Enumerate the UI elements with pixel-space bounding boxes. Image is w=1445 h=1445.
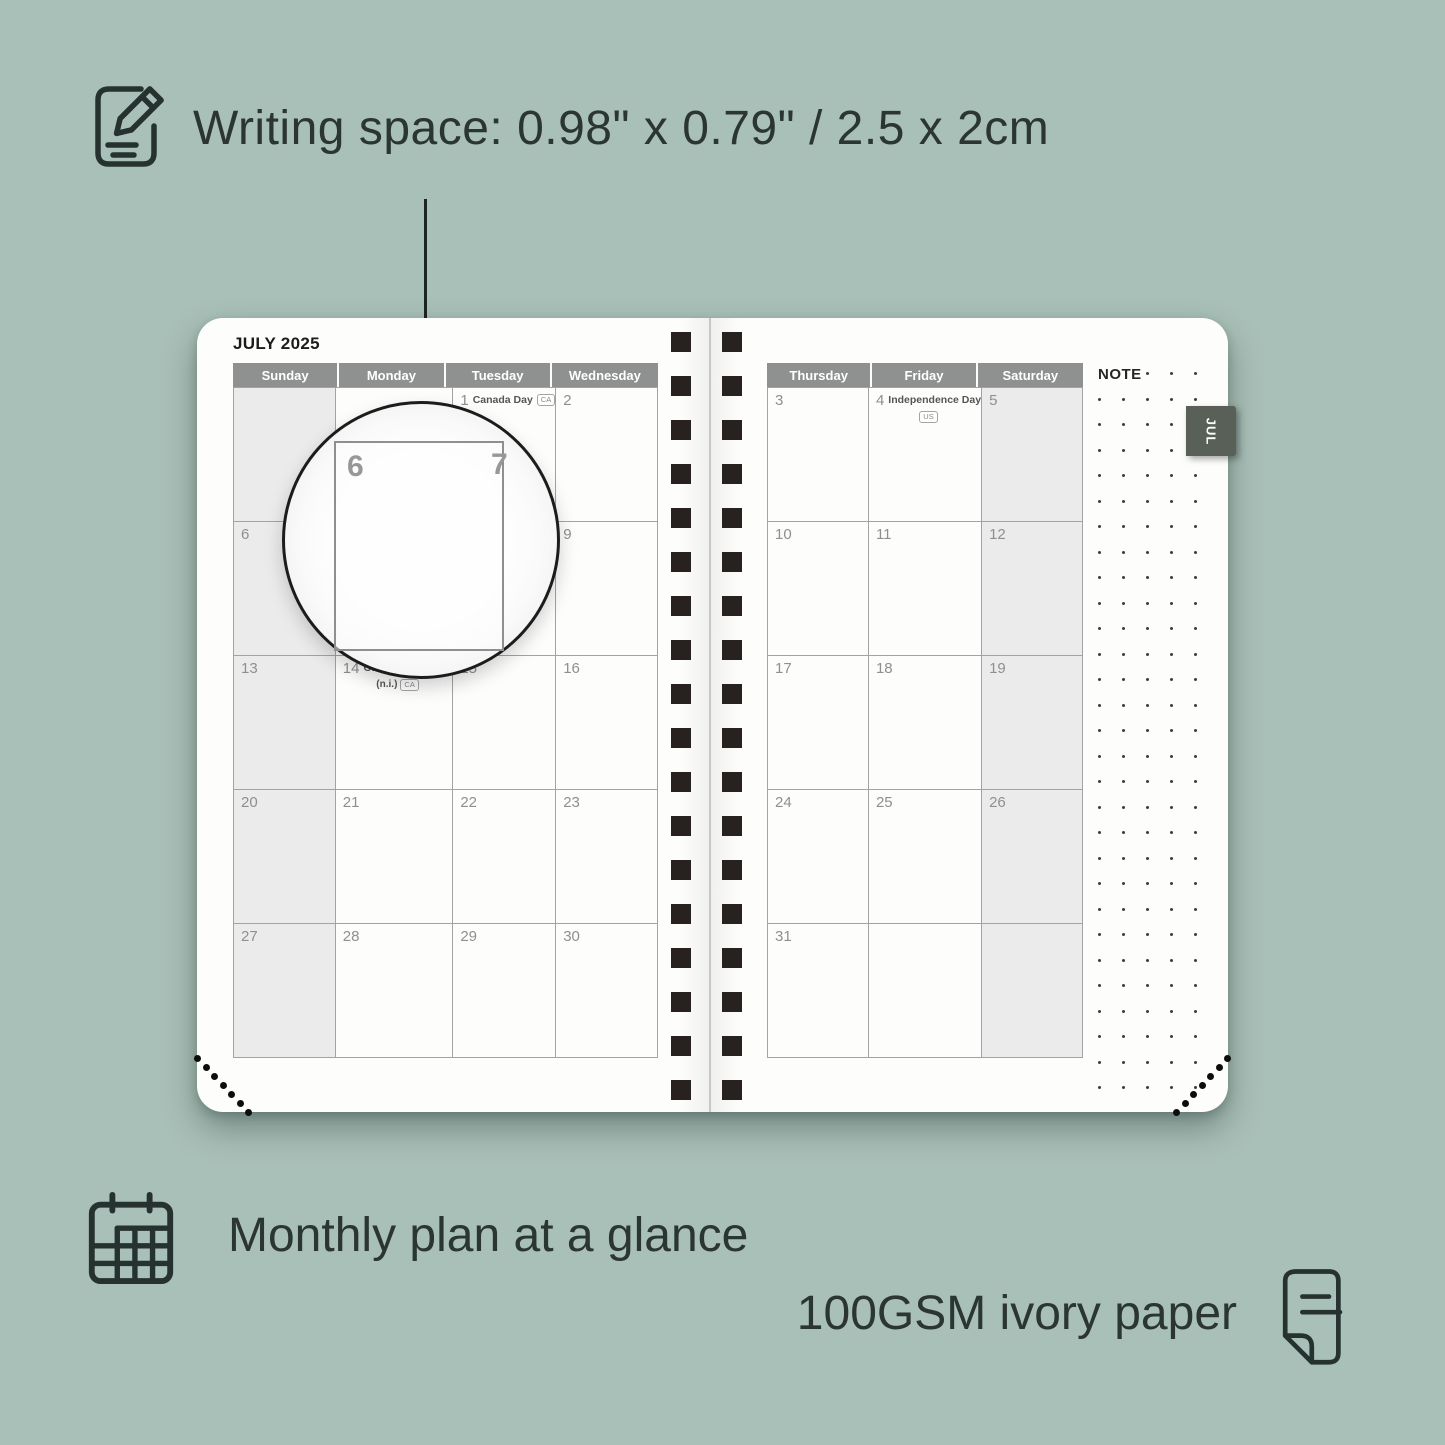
note-dot — [1098, 780, 1101, 783]
note-pencil-icon — [84, 72, 184, 176]
day-header-sunday: Sunday — [233, 363, 339, 387]
note-dot — [1194, 398, 1197, 401]
note-dot — [1146, 525, 1149, 528]
note-dot — [1170, 857, 1173, 860]
note-dot — [1122, 984, 1125, 987]
note-dot — [1194, 780, 1197, 783]
spiral-hole — [671, 376, 691, 396]
note-dot — [1194, 500, 1197, 503]
note-dot — [1098, 398, 1101, 401]
note-dot — [1122, 959, 1125, 962]
perforation-dot — [228, 1091, 235, 1098]
spiral-hole — [722, 508, 742, 528]
perforation-dot — [1182, 1100, 1189, 1107]
note-dot — [1170, 755, 1173, 758]
spiral-hole — [722, 552, 742, 572]
date-number: 3 — [775, 392, 783, 409]
note-dot — [1194, 653, 1197, 656]
perforation-dot — [211, 1073, 218, 1080]
spiral-hole — [722, 332, 742, 352]
month-tab-jul: JUL — [1186, 406, 1236, 456]
holiday-subline: US — [876, 409, 981, 423]
note-dot — [1098, 602, 1101, 605]
note-dot — [1122, 525, 1125, 528]
spiral-hole — [722, 948, 742, 968]
note-dot — [1122, 602, 1125, 605]
date-number: 16 — [563, 660, 580, 677]
calendar-cell-17: 17 — [768, 656, 869, 790]
note-dot — [1122, 704, 1125, 707]
note-dot — [1146, 474, 1149, 477]
note-dot — [1170, 704, 1173, 707]
note-dot — [1098, 755, 1101, 758]
note-dot — [1194, 806, 1197, 809]
note-dot — [1170, 1010, 1173, 1013]
note-dot — [1146, 729, 1149, 732]
note-dot — [1122, 933, 1125, 936]
spiral-binding-left — [671, 318, 691, 1112]
note-dot — [1122, 500, 1125, 503]
date-number: 22 — [460, 794, 477, 811]
note-dot — [1194, 525, 1197, 528]
note-dot — [1194, 857, 1197, 860]
note-dot — [1098, 908, 1101, 911]
spiral-hole — [722, 1036, 742, 1056]
spiral-hole — [722, 376, 742, 396]
note-dot — [1146, 831, 1149, 834]
note-dot — [1194, 984, 1197, 987]
note-dot — [1170, 576, 1173, 579]
month-tab-label: JUL — [1204, 417, 1219, 445]
note-dot — [1146, 602, 1149, 605]
spiral-hole — [671, 816, 691, 836]
note-dot — [1122, 806, 1125, 809]
calendar-cell-16: 16 — [556, 656, 658, 790]
note-dot — [1170, 959, 1173, 962]
calendar-cell-24: 24 — [768, 790, 869, 924]
note-dot — [1194, 933, 1197, 936]
spiral-hole — [671, 552, 691, 572]
note-dot — [1146, 551, 1149, 554]
perforation-dot — [220, 1082, 227, 1089]
date-number: 18 — [876, 660, 893, 677]
note-dot — [1122, 780, 1125, 783]
writing-space-caption: Writing space: 0.98" x 0.79" / 2.5 x 2cm — [193, 101, 1049, 156]
note-dot — [1194, 729, 1197, 732]
perforation-dot — [1173, 1109, 1180, 1116]
calendar-cell — [982, 924, 1083, 1058]
note-dot — [1170, 729, 1173, 732]
note-dot — [1194, 678, 1197, 681]
date-number: 31 — [775, 928, 792, 945]
spiral-hole — [722, 728, 742, 748]
note-dot — [1170, 398, 1173, 401]
calendar-cell-15: 15 — [453, 656, 556, 790]
spiral-hole — [671, 684, 691, 704]
note-dot — [1098, 1086, 1101, 1089]
date-number: 17 — [775, 660, 792, 677]
note-dot — [1098, 704, 1101, 707]
perforation-dot — [1190, 1091, 1197, 1098]
day-header-friday: Friday — [872, 363, 977, 387]
calendar-cell — [869, 924, 982, 1058]
note-dot — [1194, 704, 1197, 707]
perforation-dot — [1207, 1073, 1214, 1080]
spiral-hole — [671, 1080, 691, 1100]
date-number: 28 — [343, 928, 360, 945]
holiday-name: Independence Day — [888, 393, 981, 408]
note-dot — [1170, 1086, 1173, 1089]
note-dot — [1098, 831, 1101, 834]
calendar-cell-30: 30 — [556, 924, 658, 1058]
note-label: NOTE — [1098, 366, 1142, 383]
date-number: 4 — [876, 392, 884, 409]
date-number: 6 — [241, 526, 249, 543]
note-dot — [1122, 729, 1125, 732]
spiral-hole — [671, 948, 691, 968]
note-dot — [1170, 500, 1173, 503]
date-number: 13 — [241, 660, 258, 677]
note-dot — [1194, 602, 1197, 605]
calendar-cell-3: 3 — [768, 388, 869, 522]
note-dot — [1122, 831, 1125, 834]
note-dot — [1194, 576, 1197, 579]
note-dot — [1098, 984, 1101, 987]
magnified-date-6: 6 — [347, 450, 364, 484]
magnifier-circle: 6 7 — [282, 401, 560, 679]
note-dot — [1122, 1035, 1125, 1038]
note-dot — [1146, 423, 1149, 426]
calendar-cell-4: 4Independence DayUS — [869, 388, 982, 522]
date-number: 9 — [563, 526, 571, 543]
note-dot — [1170, 882, 1173, 885]
monthly-plan-caption: Monthly plan at a glance — [228, 1208, 748, 1263]
note-dot — [1146, 882, 1149, 885]
calendar-cell-20: 20 — [234, 790, 336, 924]
date-number: 29 — [460, 928, 477, 945]
calendar-cell-28: 28 — [336, 924, 454, 1058]
note-dot — [1122, 551, 1125, 554]
note-dot — [1122, 627, 1125, 630]
spiral-hole — [722, 816, 742, 836]
note-dot — [1122, 449, 1125, 452]
note-dot — [1098, 525, 1101, 528]
note-dot — [1146, 1061, 1149, 1064]
note-dot — [1098, 551, 1101, 554]
country-badge: CA — [537, 394, 555, 406]
calendar-cell-10: 10 — [768, 522, 869, 656]
date-number: 5 — [989, 392, 997, 409]
date-number: 20 — [241, 794, 258, 811]
perforation-dot — [1224, 1055, 1231, 1062]
note-dot — [1170, 627, 1173, 630]
note-dot — [1098, 678, 1101, 681]
calendar-cell-5: 5 — [982, 388, 1083, 522]
calendar-cell-25: 25 — [869, 790, 982, 924]
note-dot — [1170, 449, 1173, 452]
calendar-cell-11: 11 — [869, 522, 982, 656]
spiral-hole — [722, 420, 742, 440]
note-dot — [1170, 1035, 1173, 1038]
note-dot — [1194, 908, 1197, 911]
note-dot — [1194, 1086, 1197, 1089]
spiral-hole — [722, 1080, 742, 1100]
calendar-cell-18: 18 — [869, 656, 982, 790]
note-dot — [1194, 1035, 1197, 1038]
note-dot — [1098, 1010, 1101, 1013]
country-badge: US — [919, 411, 937, 423]
date-number: 24 — [775, 794, 792, 811]
perforation-dot — [194, 1055, 201, 1062]
note-dot — [1098, 729, 1101, 732]
note-dot — [1146, 780, 1149, 783]
note-dot — [1098, 627, 1101, 630]
calendar-icon — [82, 1186, 180, 1290]
holiday-note: (n.i.) — [376, 679, 397, 690]
calendar-right-page: ThursdayFridaySaturday34Independence Day… — [767, 363, 1083, 1058]
spiral-hole — [671, 332, 691, 352]
spiral-hole — [671, 860, 691, 880]
day-header-saturday: Saturday — [978, 363, 1083, 387]
note-dot — [1098, 959, 1101, 962]
note-dot — [1122, 1086, 1125, 1089]
spiral-hole — [671, 772, 691, 792]
note-dot — [1194, 959, 1197, 962]
perforation-dot — [203, 1064, 210, 1071]
note-dot — [1098, 1035, 1101, 1038]
note-dot — [1098, 423, 1101, 426]
note-dot — [1170, 1061, 1173, 1064]
note-dot — [1146, 449, 1149, 452]
date-number: 30 — [563, 928, 580, 945]
note-dot — [1146, 1010, 1149, 1013]
spiral-hole — [671, 1036, 691, 1056]
date-number: 25 — [876, 794, 893, 811]
day-header-tuesday: Tuesday — [446, 363, 552, 387]
note-dot — [1098, 933, 1101, 936]
note-dot — [1170, 806, 1173, 809]
note-dot — [1122, 423, 1125, 426]
spiral-hole — [671, 904, 691, 924]
spiral-hole — [722, 860, 742, 880]
perforation-dot — [245, 1109, 252, 1116]
calendar-cell-23: 23 — [556, 790, 658, 924]
perforation-dot — [237, 1100, 244, 1107]
spiral-hole — [671, 640, 691, 660]
note-dot — [1122, 1010, 1125, 1013]
note-dot — [1146, 959, 1149, 962]
note-dot — [1146, 704, 1149, 707]
note-dot — [1122, 653, 1125, 656]
note-dot — [1170, 525, 1173, 528]
note-dot — [1098, 576, 1101, 579]
note-dot — [1146, 678, 1149, 681]
note-dot — [1122, 1061, 1125, 1064]
note-dot — [1146, 857, 1149, 860]
spine-divider — [709, 318, 711, 1112]
note-dot — [1098, 449, 1101, 452]
note-dot — [1194, 831, 1197, 834]
note-dot — [1122, 755, 1125, 758]
note-dot — [1194, 372, 1197, 375]
note-dot — [1170, 780, 1173, 783]
product-infographic: Writing space: 0.98" x 0.79" / 2.5 x 2cm… — [0, 0, 1445, 1445]
note-dot — [1146, 653, 1149, 656]
spiral-hole — [722, 772, 742, 792]
note-dot — [1146, 1035, 1149, 1038]
note-dot — [1146, 627, 1149, 630]
spiral-hole — [671, 508, 691, 528]
date-number: 19 — [989, 660, 1006, 677]
spiral-hole — [722, 904, 742, 924]
country-badge: CA — [400, 679, 418, 691]
note-dot — [1170, 602, 1173, 605]
note-dot — [1146, 984, 1149, 987]
spiral-hole — [671, 728, 691, 748]
note-dot — [1146, 1086, 1149, 1089]
note-dot — [1170, 653, 1173, 656]
date-number: 2 — [563, 392, 571, 409]
date-number: 23 — [563, 794, 580, 811]
note-dot — [1194, 551, 1197, 554]
date-number: 12 — [989, 526, 1006, 543]
calendar-cell-13: 13 — [234, 656, 336, 790]
calendar-cell-2: 2 — [556, 388, 658, 522]
note-dot — [1122, 576, 1125, 579]
note-dot — [1170, 551, 1173, 554]
spiral-hole — [671, 464, 691, 484]
spiral-hole — [722, 992, 742, 1012]
note-dot — [1098, 500, 1101, 503]
note-dot — [1098, 882, 1101, 885]
note-dot — [1122, 398, 1125, 401]
day-header-wednesday: Wednesday — [552, 363, 658, 387]
calendar-cell-22: 22 — [453, 790, 556, 924]
spiral-hole — [671, 420, 691, 440]
spiral-hole — [722, 640, 742, 660]
perforation-dot — [1216, 1064, 1223, 1071]
note-dot — [1170, 474, 1173, 477]
day-header-monday: Monday — [339, 363, 445, 387]
holiday-name: Canada Day — [473, 393, 533, 408]
note-dot — [1170, 423, 1173, 426]
note-dot — [1122, 678, 1125, 681]
note-dot — [1146, 576, 1149, 579]
note-dot — [1146, 500, 1149, 503]
note-dot — [1098, 857, 1101, 860]
paper-icon — [1268, 1263, 1354, 1377]
note-dot — [1170, 831, 1173, 834]
spiral-hole — [722, 596, 742, 616]
note-dot — [1122, 857, 1125, 860]
date-number: 27 — [241, 928, 258, 945]
holiday-subline: (n.i.)CA — [343, 677, 453, 691]
note-dot — [1194, 755, 1197, 758]
perforation-dot — [1199, 1082, 1206, 1089]
calendar-cell-26: 26 — [982, 790, 1083, 924]
note-dot — [1194, 1010, 1197, 1013]
note-dot — [1194, 1061, 1197, 1064]
note-dot — [1170, 908, 1173, 911]
calendar-cell-21: 21 — [336, 790, 454, 924]
note-dot — [1098, 474, 1101, 477]
month-title: JULY 2025 — [233, 334, 320, 354]
note-dot — [1170, 372, 1173, 375]
calendar-cell-29: 29 — [453, 924, 556, 1058]
note-dot — [1098, 653, 1101, 656]
calendar-cell-12: 12 — [982, 522, 1083, 656]
calendar-cell-31: 31 — [768, 924, 869, 1058]
calendar-cell-19: 19 — [982, 656, 1083, 790]
note-dot — [1146, 908, 1149, 911]
note-dot — [1170, 678, 1173, 681]
note-dot — [1170, 933, 1173, 936]
spiral-hole — [671, 992, 691, 1012]
day-header-thursday: Thursday — [767, 363, 872, 387]
note-dot — [1194, 882, 1197, 885]
note-dot — [1146, 398, 1149, 401]
note-dot — [1170, 984, 1173, 987]
spiral-hole — [671, 596, 691, 616]
calendar-cell-27: 27 — [234, 924, 336, 1058]
note-dot — [1098, 1061, 1101, 1064]
date-number: 26 — [989, 794, 1006, 811]
note-dot — [1146, 933, 1149, 936]
spiral-hole — [722, 464, 742, 484]
note-dot — [1194, 627, 1197, 630]
note-dot — [1146, 372, 1149, 375]
note-dot — [1098, 806, 1101, 809]
paper-caption: 100GSM ivory paper — [797, 1286, 1237, 1341]
magnified-date-7: 7 — [491, 448, 508, 482]
date-number: 10 — [775, 526, 792, 543]
note-dot — [1146, 755, 1149, 758]
date-number: 21 — [343, 794, 360, 811]
date-number: 11 — [876, 526, 892, 543]
note-dot — [1122, 882, 1125, 885]
note-dot — [1146, 806, 1149, 809]
note-dot — [1122, 474, 1125, 477]
note-dot — [1122, 908, 1125, 911]
calendar-cell-9: 9 — [556, 522, 658, 656]
spiral-hole — [722, 684, 742, 704]
spiral-binding-right — [722, 318, 742, 1112]
note-dot — [1194, 474, 1197, 477]
